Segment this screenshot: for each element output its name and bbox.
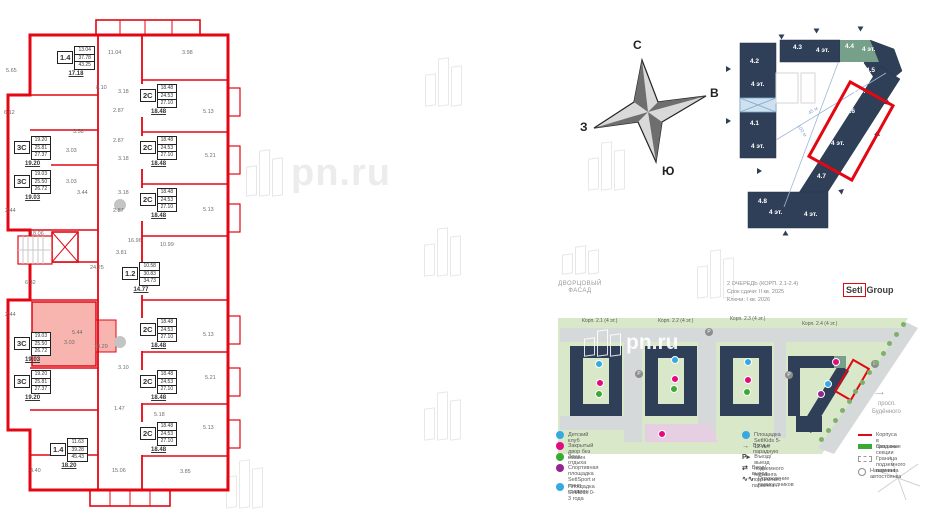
dimension-value: 24.25 [90, 265, 104, 271]
apartment-stamp[interactable]: 3С19.0325.5026.7219.03 [14, 170, 51, 203]
bathroom-fixture [114, 336, 126, 348]
section-number-label: 4.3 [793, 44, 802, 51]
legend-item-label: Площадка SetlKids 0-3 года [568, 484, 595, 502]
apartment-area-value: 27.10 [158, 152, 177, 159]
apartment-stamp[interactable]: 1.411.6339.2845.4318.20 [50, 438, 88, 471]
pnru-watermark-text: pn.ru [291, 152, 391, 195]
section-number-label: 4.4 [845, 43, 854, 50]
legend-item: ∿∿Ограждение палисадников [742, 476, 794, 488]
apartment-type-label: 1.4 [50, 443, 66, 456]
dimension-value: 5.18 [154, 412, 165, 418]
dimension-value: 2.44 [5, 312, 16, 318]
apartment-type-label: 2С [140, 141, 156, 154]
apartment-stamp-row: 2С18.4824.5327.10 [140, 318, 177, 342]
street-arrow: ⟶ [875, 390, 884, 397]
dimension-value: 3.03 [64, 340, 75, 346]
apartment-area-value: 19.03 [32, 171, 51, 179]
apartment-stamp-row: 1.210.5830.8334.73 [122, 262, 160, 286]
apartment-area-value: 27.10 [158, 100, 177, 107]
apartment-area-value: 11.63 [68, 439, 87, 447]
apartment-area-value: 18.48 [158, 137, 177, 145]
pnru-logo-icon [584, 330, 621, 356]
parking-icon: Р [785, 371, 793, 379]
dimension-value: 2.87 [113, 108, 124, 114]
pnru-watermark: pn.ru [246, 150, 391, 196]
amenity-icon [596, 379, 604, 387]
entrance-arrow-icon [726, 118, 731, 124]
apartment-stamp-row: 2С18.4824.5327.10 [140, 84, 177, 108]
pnru-watermark-text: pn.ru [626, 331, 679, 355]
section-number-label: 4.8 [758, 198, 767, 205]
apartment-area-value: 24.53 [158, 197, 177, 205]
through-section-icon [858, 444, 872, 449]
developer-logo: Setl Group [843, 283, 894, 297]
apartment-areas: 19.0325.5026.72 [31, 332, 52, 356]
apartment-areas: 18.4824.5327.10 [157, 188, 178, 212]
dimension-value: 2.87 [113, 208, 124, 214]
apartment-total-area: 19.20 [14, 160, 51, 169]
amenity-legend-icon [742, 431, 750, 439]
apartment-areas: 18.4824.5327.10 [157, 422, 178, 446]
floors-count-label: 4 эт. [769, 209, 782, 216]
floors-count-label: 4 эт. [862, 46, 875, 53]
apartment-area-value: 27.10 [158, 204, 177, 211]
apartment-type-label: 2С [140, 89, 156, 102]
apartment-area-value: 18.48 [158, 423, 177, 431]
project-name-line2: ФАСАД [552, 288, 608, 295]
apartment-stamp[interactable]: 2С18.4824.5327.1018.48 [140, 84, 177, 117]
amenity-icon [671, 375, 679, 383]
amenity-icon [595, 360, 603, 368]
apartment-area-value: 18.48 [158, 371, 177, 379]
queue-line3: Ключи: I кв. 2026 [727, 296, 798, 304]
dimension-value: 3.58 [73, 129, 84, 135]
apartment-stamp-row: 2С18.4824.5327.10 [140, 370, 177, 394]
apartment-area-value: 30.83 [140, 271, 159, 279]
section-number-label: 4.2 [750, 58, 759, 65]
apartment-total-area: 18.48 [140, 342, 177, 351]
project-name-line1: ДВОРЦОВЫЙ [552, 281, 608, 288]
tree-icon [894, 332, 899, 337]
amenity-icon [670, 385, 678, 393]
dimension-value: 18.29 [94, 344, 108, 350]
apartment-total-area: 18.48 [140, 212, 177, 221]
amenity-icon [832, 358, 840, 366]
apartment-stamp[interactable]: 3С19.2025.8127.3719.20 [14, 370, 51, 403]
for-sale-line-icon [858, 434, 872, 436]
dimension-value: 3.18 [118, 190, 129, 196]
compass-south-label: Ю [662, 164, 674, 178]
apartment-stamp-row: 2С18.4824.5327.10 [140, 422, 177, 446]
dimension-value: 5.21 [205, 375, 216, 381]
amenity-legend-icon [556, 431, 564, 439]
apartment-area-value: 27.37 [32, 386, 51, 393]
apartment-total-area: 18.48 [140, 160, 177, 169]
amenity-icon [743, 388, 751, 396]
apartment-stamp-row: 2С18.4824.5327.10 [140, 136, 177, 160]
amenity-legend-icon [556, 442, 564, 450]
floors-count-label: 4 эт. [816, 47, 829, 54]
dimension-value: 5.13 [203, 207, 214, 213]
apartment-area-value: 39.28 [68, 447, 87, 455]
floors-count-label: 4 эт. [751, 81, 764, 88]
apartment-stamp-row: 3С19.0325.5026.72 [14, 332, 51, 356]
apartment-stamp[interactable]: 2С18.4824.5327.1018.48 [140, 370, 177, 403]
apartment-areas: 18.4824.5327.10 [157, 370, 178, 394]
apartment-area-value: 19.20 [32, 371, 51, 379]
apartment-stamp-row: 2С18.4824.5327.10 [140, 188, 177, 212]
dimension-value: 3.44 [77, 190, 88, 196]
street-name-line1: просп. [878, 401, 896, 407]
apartment-areas: 18.4824.5327.10 [157, 84, 178, 108]
corpus-label: Корп. 2.2 (4 эт.) [658, 318, 693, 324]
compass-rose: С В Ю З [580, 40, 720, 180]
section-number-label: 4.1 [750, 120, 759, 127]
dimension-value: 3.85 [180, 469, 191, 475]
setl-logo-group: Group [867, 285, 894, 295]
apartment-stamp[interactable]: 1.210.5830.8334.7314.77 [122, 262, 160, 295]
pnru-watermark-site: pn.ru [584, 330, 679, 356]
dimension-value: 5.13 [203, 425, 214, 431]
dimension-value: 3.98 [182, 50, 193, 56]
apartment-area-value: 27.10 [158, 438, 177, 445]
tree-icon [867, 370, 872, 375]
amenity-legend-icon [556, 464, 564, 472]
queue-info: 2 очередь (корп. 2.1-2.4) Срок сдачи: II… [727, 280, 798, 304]
compass-west-label: З [580, 120, 588, 134]
apartment-area-value: 25.50 [32, 341, 51, 349]
apartment-type-label: 2С [140, 375, 156, 388]
apartment-stamp-row: 1.413.0437.7843.25 [57, 46, 95, 70]
queue-line2: Срок сдачи: II кв. 2025 [727, 288, 798, 296]
compass-east-label: В [710, 86, 719, 100]
underground-parking-entry-icon: Р▸ [742, 454, 750, 461]
compass-north-label: С [633, 38, 642, 52]
apartment-total-area: 18.20 [50, 462, 88, 471]
corpus-label: Корп. 2.3 (4 эт.) [730, 316, 765, 322]
dimension-value: 2.44 [5, 208, 16, 214]
apartment-areas: 19.2025.8127.37 [31, 136, 52, 160]
queue-line1: 2 очередь (корп. 2.1-2.4) [727, 280, 798, 288]
apartment-area-value: 10.58 [140, 263, 159, 271]
project-building-icon [562, 246, 599, 274]
apartment-area-value: 19.03 [32, 333, 51, 341]
street-name-line2: Будённого [872, 409, 901, 415]
apartment-total-area: 14.77 [122, 286, 160, 295]
apartment-stamp-row: 3С19.2025.8127.37 [14, 136, 51, 160]
amenity-legend-icon [556, 483, 564, 491]
amenity-icon [817, 390, 825, 398]
apartment-area-value: 25.50 [32, 179, 51, 187]
apartment-stamp-row: 3С19.2025.8127.37 [14, 370, 51, 394]
underground-parking-border-icon [858, 456, 872, 462]
corpus-label: Корп. 2.4 (4 эт.) [802, 321, 837, 327]
corpus-label: Корп. 2.1 (4 эт.) [582, 318, 617, 324]
dimension-value: 6.12 [4, 110, 15, 116]
apartment-stamp[interactable]: 2С18.4824.5327.1018.48 [140, 188, 177, 221]
fence-squiggle-icon: ∿∿ [742, 476, 754, 483]
floorplan-page: { "watermark": {"text": "pn.ru"}, "compa… [0, 0, 936, 527]
apartment-stamp[interactable]: 1.413.0437.7843.2517.18 [57, 46, 95, 79]
apartment-area-value: 24.53 [158, 327, 177, 335]
apartment-area-value: 43.25 [75, 62, 94, 69]
apartment-stamp-row: 3С19.0325.5026.72 [14, 170, 51, 194]
dimension-value: 5.21 [205, 153, 216, 159]
apartment-total-area: 18.48 [140, 446, 177, 455]
dimension-value: 10.99 [160, 242, 174, 248]
apartment-type-label: 3С [14, 375, 30, 388]
legend-item: Наземная автостоянка [858, 468, 901, 480]
setl-logo-box: Setl [843, 283, 866, 297]
entrance-arrow-icon [814, 29, 820, 34]
parking-icon: Р [705, 328, 713, 336]
parking-icon: Р [635, 370, 643, 378]
dimension-value: 3.03 [66, 148, 77, 154]
dimension-value: 5.13 [203, 332, 214, 338]
dimension-value: 5.13 [203, 109, 214, 115]
legend-item: Площадка SetlKids 0-3 года [556, 484, 595, 502]
amenity-icon [595, 390, 603, 398]
amenity-icon [744, 376, 752, 384]
floors-count-label: 4 эт. [804, 211, 817, 218]
dimension-value: 18.06 [30, 231, 44, 237]
tree-icon [847, 399, 852, 404]
dimension-value: 15.06 [112, 468, 126, 474]
apartment-area-value: 24.53 [158, 379, 177, 387]
apartment-areas: 19.0325.5026.72 [31, 170, 52, 194]
amenity-icon [658, 430, 666, 438]
entrance-arrow-icon [726, 66, 731, 72]
apartment-area-value: 18.48 [158, 85, 177, 93]
apartment-area-value: 25.81 [32, 145, 51, 153]
apartment-area-value: 26.72 [32, 186, 51, 193]
legend-item: Сквозные секции [858, 444, 901, 456]
apartment-total-area: 19.03 [14, 194, 51, 203]
pnru-ghost-watermark-icon [424, 392, 461, 440]
apartment-type-label: 1.2 [122, 267, 138, 280]
apartment-total-area: 17.18 [57, 70, 95, 79]
apartment-area-value: 34.73 [140, 278, 159, 285]
apartment-areas: 13.0437.7843.25 [74, 46, 95, 70]
apartment-stamp[interactable]: 3С19.0325.5026.7219.03 [14, 332, 51, 365]
apartment-area-value: 27.10 [158, 334, 177, 341]
entrance-arrow-icon [757, 168, 762, 174]
apartment-stamp-row: 1.411.6339.2845.43 [50, 438, 88, 462]
apartment-areas: 11.6339.2845.43 [67, 438, 88, 462]
legend-item-label: Наземная автостоянка [870, 468, 901, 480]
apartment-type-label: 3С [14, 141, 30, 154]
apartment-area-value: 25.81 [32, 379, 51, 387]
apartment-area-value: 26.72 [32, 348, 51, 355]
apartment-area-value: 18.48 [158, 319, 177, 327]
dimension-value: 2.87 [113, 138, 124, 144]
apartment-areas: 19.2025.8127.37 [31, 370, 52, 394]
apartment-type-label: 1.4 [57, 51, 73, 64]
dimension-value: 5.44 [72, 330, 83, 336]
apartment-stamp[interactable]: 2С18.4824.5327.1018.48 [140, 422, 177, 455]
tree-icon [833, 418, 838, 423]
apartment-type-label: 3С [14, 337, 30, 350]
dimension-value: 4.40 [30, 468, 41, 474]
section-number-label: 4.5 [866, 67, 875, 74]
apartment-area-value: 24.53 [158, 145, 177, 153]
dimension-value: 6.32 [25, 280, 36, 286]
apartment-total-area: 19.20 [14, 394, 51, 403]
apartment-total-area: 18.48 [140, 108, 177, 117]
apartment-area-value: 24.53 [158, 431, 177, 439]
apartment-type-label: 2С [140, 323, 156, 336]
pnru-logo-icon [246, 150, 283, 196]
apartment-stamp[interactable]: 3С19.2025.8127.3719.20 [14, 136, 51, 169]
entrance-arrow-icon [858, 27, 864, 32]
dimension-value: 16.96 [128, 238, 142, 244]
amenity-icon [671, 356, 679, 364]
entrance-arrow-icon: → [742, 443, 749, 450]
dimension-value: 3.18 [118, 156, 129, 162]
pedestrian-icon: ⇄ [742, 465, 748, 472]
amenity-icon [744, 358, 752, 366]
dimension-value: 3.81 [116, 250, 127, 256]
dimension-value: 5.65 [6, 68, 17, 74]
tree-icon [881, 351, 886, 356]
apartment-area-value: 27.10 [158, 386, 177, 393]
dimension-value: 11.04 [108, 50, 121, 56]
legend-item-label: Ограждение палисадников [758, 476, 794, 488]
apartment-total-area: 18.48 [140, 394, 177, 403]
apartment-area-value: 37.78 [75, 55, 94, 63]
apartment-type-label: 3С [14, 175, 30, 188]
amenity-icon [824, 380, 832, 388]
dimension-value: 3.03 [66, 179, 77, 185]
legend-item-label: Сквозные секции [876, 444, 901, 456]
apartment-areas: 18.4824.5327.10 [157, 318, 178, 342]
ground-parking-icon [858, 468, 866, 476]
compass-star-icon [580, 40, 720, 180]
tree-icon [901, 322, 906, 327]
apartment-area-value: 19.20 [32, 137, 51, 145]
apartment-stamp[interactable]: 2С18.4824.5327.1018.48 [140, 136, 177, 169]
apartment-area-value: 13.04 [75, 47, 94, 55]
pnru-ghost-watermark-icon [425, 58, 462, 106]
dimension-value: 1.47 [114, 406, 125, 412]
tree-icon [826, 428, 831, 433]
amenity-legend-icon [556, 453, 564, 461]
dimension-value: 8.10 [96, 85, 107, 91]
entrance-arrow-icon [779, 35, 785, 40]
apartment-type-label: 2С [140, 427, 156, 440]
tree-icon [860, 380, 865, 385]
apartment-area-value: 45.43 [68, 454, 87, 461]
dimension-value: 3.18 [118, 89, 129, 95]
apartment-area-value: 18.48 [158, 189, 177, 197]
section-number-label: 4.7 [817, 173, 826, 180]
apartment-area-value: 27.37 [32, 152, 51, 159]
apartment-areas: 18.4824.5327.10 [157, 136, 178, 160]
entrance-arrow-icon [783, 231, 789, 236]
apartment-areas: 10.5830.8334.73 [139, 262, 160, 286]
apartment-area-value: 24.53 [158, 93, 177, 101]
apartment-type-label: 2С [140, 193, 156, 206]
apartment-total-area: 19.03 [14, 356, 51, 365]
dimension-value: 3.10 [118, 365, 129, 371]
project-mark: ДВОРЦОВЫЙ ФАСАД [552, 246, 608, 295]
floors-count-label: 4 эт. [751, 143, 764, 150]
apartment-stamp[interactable]: 2С18.4824.5327.1018.48 [140, 318, 177, 351]
pnru-ghost-watermark-icon [424, 228, 461, 276]
